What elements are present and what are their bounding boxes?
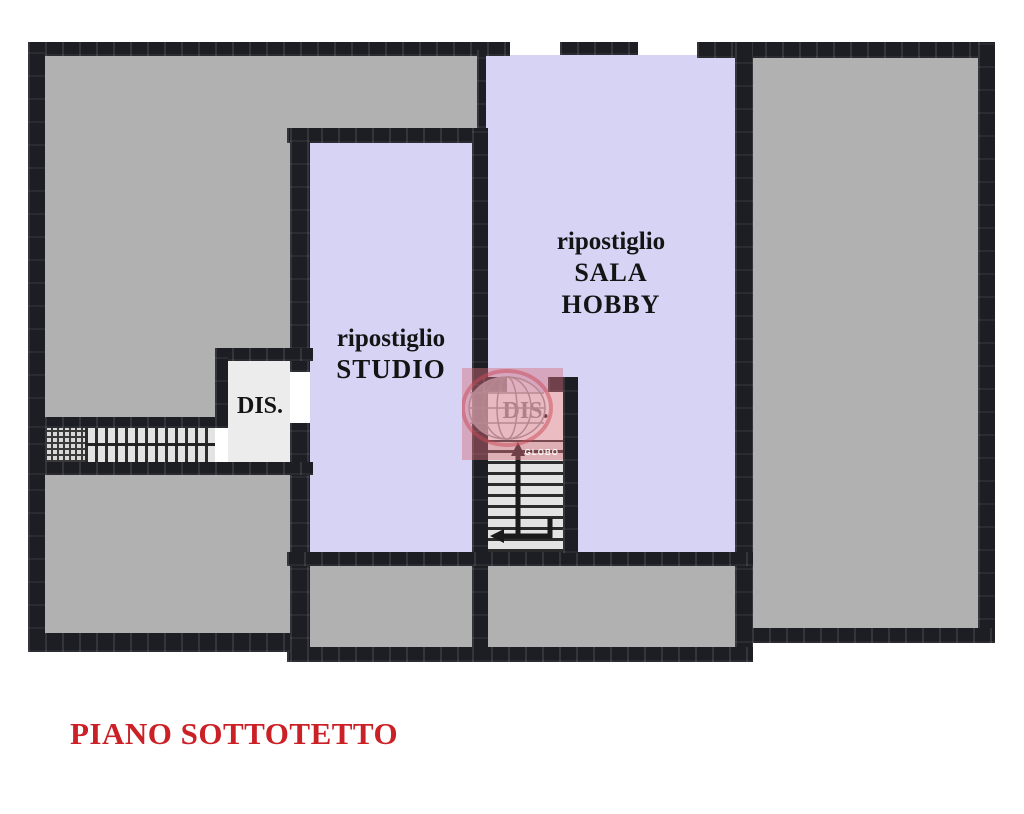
wall-studio-left-upper [290,128,310,372]
wall-left-bottom [28,633,296,652]
page-title: PIANO SOTTOTETTO [70,716,398,752]
room-top-left [45,56,477,128]
wall-middle-bottom [287,647,753,662]
wall-studio-left-lower [290,423,310,662]
wall-studio-right [472,128,488,662]
wall-dis-center-stub-left [483,377,507,392]
wall-right-outer [978,42,995,643]
studio-label-line1: ripostiglio [310,326,472,351]
room-top-left [45,348,215,417]
hobby-label-line2: SALA [487,260,735,286]
room-right [753,58,978,628]
room-top-left [45,128,290,348]
wall-studio-top [287,128,483,143]
wall-left-outer [28,42,45,652]
left-staircase-divider [85,443,215,446]
floor-plan: ripostiglio STUDIO ripostiglio SALA HOBB… [0,0,1024,814]
left-staircase-landing [45,427,85,462]
staircase-direction-arrow [488,440,563,552]
wall-middle-horizontal [287,552,753,566]
hobby-label-line3: HOBBY [487,292,735,318]
room-below-hobby [487,566,735,647]
wall-dis-left-top [215,348,313,361]
wall-top-middle-segment [560,42,638,55]
studio-label-line2: STUDIO [310,356,472,383]
wall-top-left-segment [28,42,510,56]
dis-left-label: DIS. [222,394,298,418]
room-left-bottom [45,475,290,633]
wall-hobby-right [735,42,753,662]
dis-center-label: DIS. [488,399,563,423]
wall-hobby-left-top [477,50,486,128]
wall-left-stairs-top [28,417,228,428]
hobby-label-line1: ripostiglio [487,229,735,254]
room-below-studio [310,566,472,647]
wall-right-bottom [735,628,995,643]
wall-left-stairs-bottom [28,462,313,475]
wall-dis-center-right [563,377,578,553]
